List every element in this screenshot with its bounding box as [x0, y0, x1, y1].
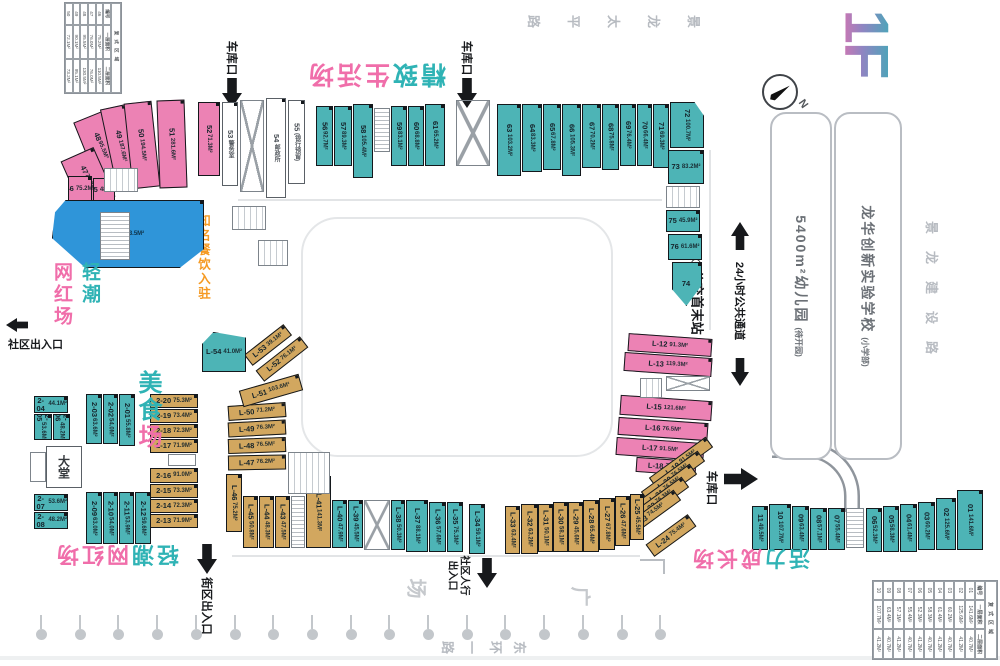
road-dot-stem-3: [156, 615, 158, 629]
road-top-char-0: 路: [525, 15, 544, 28]
elev-core-5: [232, 206, 266, 230]
kindergarten-building: 5400m²幼儿园 (待开园): [770, 112, 832, 460]
road-dot-14: [578, 629, 589, 640]
zone-label-jingzhi: 精致生活场: [306, 58, 446, 94]
unit-2-12[interactable]: 2-1259.6M²: [135, 492, 151, 544]
unit-L-48[interactable]: L-4876.5M²: [228, 437, 286, 454]
unit-59[interactable]: 5983.1M²: [391, 106, 407, 166]
stair-core-14: [846, 508, 864, 548]
unit-L-27[interactable]: L-2767.8M²: [599, 498, 615, 550]
unit-L-50[interactable]: L-5071.2M²: [228, 402, 287, 421]
road-dot-stem-8: [350, 615, 352, 629]
elev-core-4: [104, 168, 138, 192]
unit-L-44[interactable]: L-4448.3M²: [259, 496, 274, 548]
unit-L-43[interactable]: L-4347.5M²: [275, 496, 290, 548]
unit-76[interactable]: 7661.6M²: [668, 234, 702, 260]
road-dot-stem-4: [195, 615, 197, 629]
unit-L-26[interactable]: L-2647.6M²: [615, 496, 630, 546]
unit-2-11[interactable]: 2-1153.9M²: [119, 492, 134, 544]
road-dot-13: [539, 629, 550, 640]
school-building: 龙华创新实验学校 (小学部): [834, 112, 902, 460]
plain-core-15: [30, 452, 46, 482]
plain-core-13: [168, 454, 196, 466]
floor-logo-text: 1F: [830, 9, 901, 77]
road-dot-12: [500, 629, 511, 640]
unit-L-25[interactable]: L-2545.5M²: [630, 494, 644, 540]
unit-2-07[interactable]: 2-0753.6M²: [34, 494, 68, 511]
unit-61[interactable]: 6165.2M²: [425, 104, 445, 166]
community-exit-arrow-icon: [6, 318, 28, 332]
lobby: 大堂: [46, 446, 82, 488]
plaza-char-1: 广: [568, 587, 597, 607]
unit-L-29[interactable]: L-2945.6M²: [568, 502, 583, 552]
road-dot-stem-13: [543, 615, 545, 629]
unit-02[interactable]: 02125.6M²: [936, 498, 956, 550]
ramp-core-12: [364, 500, 390, 550]
road-right-char-2: 建: [923, 281, 942, 294]
unit-56[interactable]: 5692.7M²: [316, 106, 333, 166]
unit-53[interactable]: 53警务室: [222, 102, 238, 186]
compass-needle: [768, 82, 792, 101]
road-top-char-2: 太: [605, 15, 624, 28]
road-bottom-char-1: 一: [463, 641, 482, 654]
unit-05[interactable]: 0558.3M²: [883, 506, 899, 552]
street-exit-label: 街区出入口: [199, 574, 215, 638]
road-dot-stem-1: [79, 615, 81, 629]
road-dot-stem-9: [388, 615, 390, 629]
unit-L-31[interactable]: L-3150.1M²: [538, 504, 553, 552]
unit-L-49[interactable]: L-4976.3M²: [228, 419, 287, 437]
community-pedestrian-exit-label: 社区人行 出入口: [447, 546, 470, 606]
road-dot-stem-6: [272, 615, 274, 629]
unit-73[interactable]: 7383.2M²: [668, 150, 704, 184]
unit-01[interactable]: 01141.6M²: [957, 490, 983, 550]
unit-72[interactable]: 72100.7M²: [670, 102, 704, 148]
compass-north-label: N: [796, 97, 810, 110]
road-right-char-1: 龙: [923, 251, 942, 264]
road-dot-11: [462, 629, 473, 640]
unit-60[interactable]: 6068.8M²: [408, 106, 424, 166]
kindergarten-name: 5400m²幼儿园: [791, 215, 811, 323]
unit-07[interactable]: 0755.4M²: [828, 508, 845, 550]
unit-2-08[interactable]: 2-0848.2M²: [34, 512, 68, 529]
stair-core-1: [374, 108, 390, 152]
community-pedestrian-arrow-icon: [477, 558, 497, 588]
road-dot-6: [268, 629, 279, 640]
unit-08[interactable]: 0857.1M²: [810, 508, 827, 550]
unit-65[interactable]: 6567.8M²: [543, 104, 561, 170]
unit-55[interactable]: 55(银行预留): [288, 100, 305, 184]
unit-67[interactable]: 6770.2M²: [582, 104, 601, 168]
unit-2-13[interactable]: 2-1371.9M²: [150, 514, 198, 528]
elev-core-3: [666, 186, 700, 208]
lobby-label: 大堂: [56, 455, 73, 479]
unit-2-05[interactable]: 2-0553.6M²: [34, 414, 52, 440]
elev-core-8: [640, 378, 662, 398]
road-dot-stem-11: [466, 615, 468, 629]
ramp-core-9: [666, 376, 710, 391]
street-exit-arrow-icon: [197, 544, 217, 574]
unit-L-34[interactable]: L-3459.1M²: [469, 504, 485, 554]
road-right-char-0: 景: [923, 221, 942, 234]
unit-75[interactable]: 7545.9M²: [666, 210, 700, 232]
road-bottom-char-0: 路: [439, 641, 458, 654]
garage-entrance-label-top-left: 车库口: [224, 36, 240, 80]
unit-L-33[interactable]: L-3363.4M²: [505, 506, 520, 554]
road-dot-stem-12: [504, 615, 506, 629]
unit-L-35[interactable]: L-3575.3M²: [447, 502, 463, 552]
unit-L-24[interactable]: L-2475.4M²: [646, 514, 697, 557]
unit-58[interactable]: 58105.4M²: [353, 104, 373, 178]
road-dot-16: [655, 629, 666, 640]
zone-label-qingchao-bottom: 轻潮网红场: [54, 540, 179, 572]
unit-2-15[interactable]: 2-1573.3M²: [150, 484, 198, 498]
duplex-table-top-left: 复式区域编号一层面积二层面积4675.2M²110.5M²4776.0M²76.…: [64, 2, 122, 94]
unit-2-16[interactable]: 2-1691.0M²: [150, 468, 198, 483]
passage-up-arrow-icon: [731, 222, 749, 250]
ramp-core-2: [456, 100, 490, 166]
road-dot-9: [384, 629, 395, 640]
kindergarten-note: (待开园): [793, 327, 804, 356]
unit-51[interactable]: 51281.6M²: [156, 100, 187, 189]
unit-52[interactable]: 5271.3M²: [198, 102, 220, 176]
road-top-char-4: 景: [685, 15, 704, 28]
unit-L-45[interactable]: L-4550.8M²: [243, 496, 258, 548]
road-dot-8: [346, 629, 357, 640]
road-dot-stem-7: [311, 615, 313, 629]
passage-down-arrow-icon: [731, 358, 749, 386]
road-bottom-char-3: 东: [511, 641, 530, 654]
road-dot-stem-2: [117, 615, 119, 629]
road-right-char-4: 路: [923, 341, 942, 354]
road-bottom-char-2: 环: [487, 641, 506, 654]
unit-L-40[interactable]: L-4047.9M²: [332, 500, 347, 548]
road-dot-5: [230, 629, 241, 640]
duplex-table-bottom-right: 复式区域编号一层面积二层面积01141.6M²40.7M²02125.6M²41…: [872, 580, 998, 660]
elev-core-10: [288, 452, 330, 494]
floorplan-canvas: 1F N 5400m²幼儿园 (待开园) 龙华创新实验学校 (小学部) ◎公交首…: [0, 0, 1000, 666]
unit-L-28[interactable]: L-2865.4M²: [583, 500, 599, 552]
road-dot-15: [617, 629, 628, 640]
unit-L-38[interactable]: L-3850.3M²: [391, 500, 405, 550]
school-note: (小学部): [860, 337, 871, 366]
compass-icon: [762, 74, 798, 110]
road-dot-stem-14: [582, 615, 584, 629]
unit-03[interactable]: 0360.2M²: [918, 502, 935, 550]
ramp-core-0: [240, 100, 264, 192]
zone-label-meishi: 美食场: [130, 370, 165, 462]
unit-2-09[interactable]: 2-0963.0M²: [86, 492, 102, 544]
garage-entrance-label-top-center: 车库口: [459, 36, 475, 80]
zone-label-huoli: 活力成长场: [690, 544, 810, 574]
unit-57[interactable]: 5789.3M²: [334, 106, 352, 166]
unit-2-03[interactable]: 2-0363.6M²: [86, 394, 102, 444]
road-dot-stem-15: [621, 615, 623, 629]
unit-71[interactable]: 7169.3M²: [653, 104, 669, 168]
unit-68[interactable]: 6875.8M²: [602, 104, 619, 170]
road-top-char-3: 龙: [645, 15, 664, 28]
unit-46[interactable]: 4675.2M²: [68, 176, 92, 202]
garage-arrow-right-icon: [724, 468, 758, 490]
stair-core-7: [100, 212, 130, 260]
unit-L-36[interactable]: L-3657.6M²: [429, 502, 446, 552]
school-name: 龙华创新实验学校: [858, 205, 878, 333]
unit-L-32[interactable]: L-3263.2M²: [521, 504, 538, 554]
road-dot-stem-5: [234, 615, 236, 629]
unit-2-06[interactable]: 2-0648.2M²: [53, 414, 70, 440]
elev-core-6: [258, 240, 288, 266]
unit-L-47[interactable]: L-4776.2M²: [228, 454, 286, 470]
road-dot-3: [152, 629, 163, 640]
unit-L-46[interactable]: L-4675.2M²: [226, 474, 242, 532]
garage-entrance-label-bottom-right: 车库口: [704, 466, 720, 510]
unit-L-39[interactable]: L-3945.5M²: [348, 500, 363, 548]
floor-logo: 1F: [822, 0, 910, 86]
unit-06[interactable]: 0652.3M²: [866, 508, 882, 552]
unit-04[interactable]: 0461.4M²: [900, 504, 917, 552]
unit-64[interactable]: 6483.3M²: [522, 104, 542, 172]
road-dot-stem-0: [40, 615, 42, 629]
road-top-char-1: 平: [565, 15, 584, 28]
unit-2-14[interactable]: 2-1472.3M²: [150, 499, 198, 513]
unit-2-04[interactable]: 2-0444.1M²: [34, 396, 68, 413]
road-dot-2: [113, 629, 124, 640]
road-dot-10: [423, 629, 434, 640]
unit-69[interactable]: 6976.4M²: [620, 104, 636, 166]
unit-70[interactable]: 7066.4M²: [637, 104, 652, 166]
road-dot-7: [307, 629, 318, 640]
unit-54[interactable]: 54邮政所: [266, 98, 286, 198]
road-dot-stem-10: [427, 615, 429, 629]
unit-L-37[interactable]: L-3788.1M²: [406, 500, 428, 552]
road-dot-1: [75, 629, 86, 640]
unit-L-30[interactable]: L-3058.1M²: [553, 502, 568, 552]
unit-63[interactable]: 63103.2M²: [497, 104, 521, 176]
road-dot-4: [191, 629, 202, 640]
unit-2-02[interactable]: 2-0254.0M²: [103, 394, 118, 444]
unit-2-10[interactable]: 2-1054.0M²: [103, 492, 118, 544]
unit-66[interactable]: 66105.3M²: [562, 104, 581, 176]
unit-L-54[interactable]: L-5441.0M²: [202, 332, 246, 372]
road-dot-0: [36, 629, 47, 640]
zone-label-qingchao-top: 轻潮网红场: [48, 262, 103, 346]
plaza-char-0: 场: [404, 579, 433, 599]
road-dot-stem-16: [659, 615, 661, 629]
stair-core-11: [291, 496, 305, 548]
public-passage-label: 24小时公共通道: [732, 249, 748, 353]
road-right-char-3: 设: [923, 311, 942, 324]
